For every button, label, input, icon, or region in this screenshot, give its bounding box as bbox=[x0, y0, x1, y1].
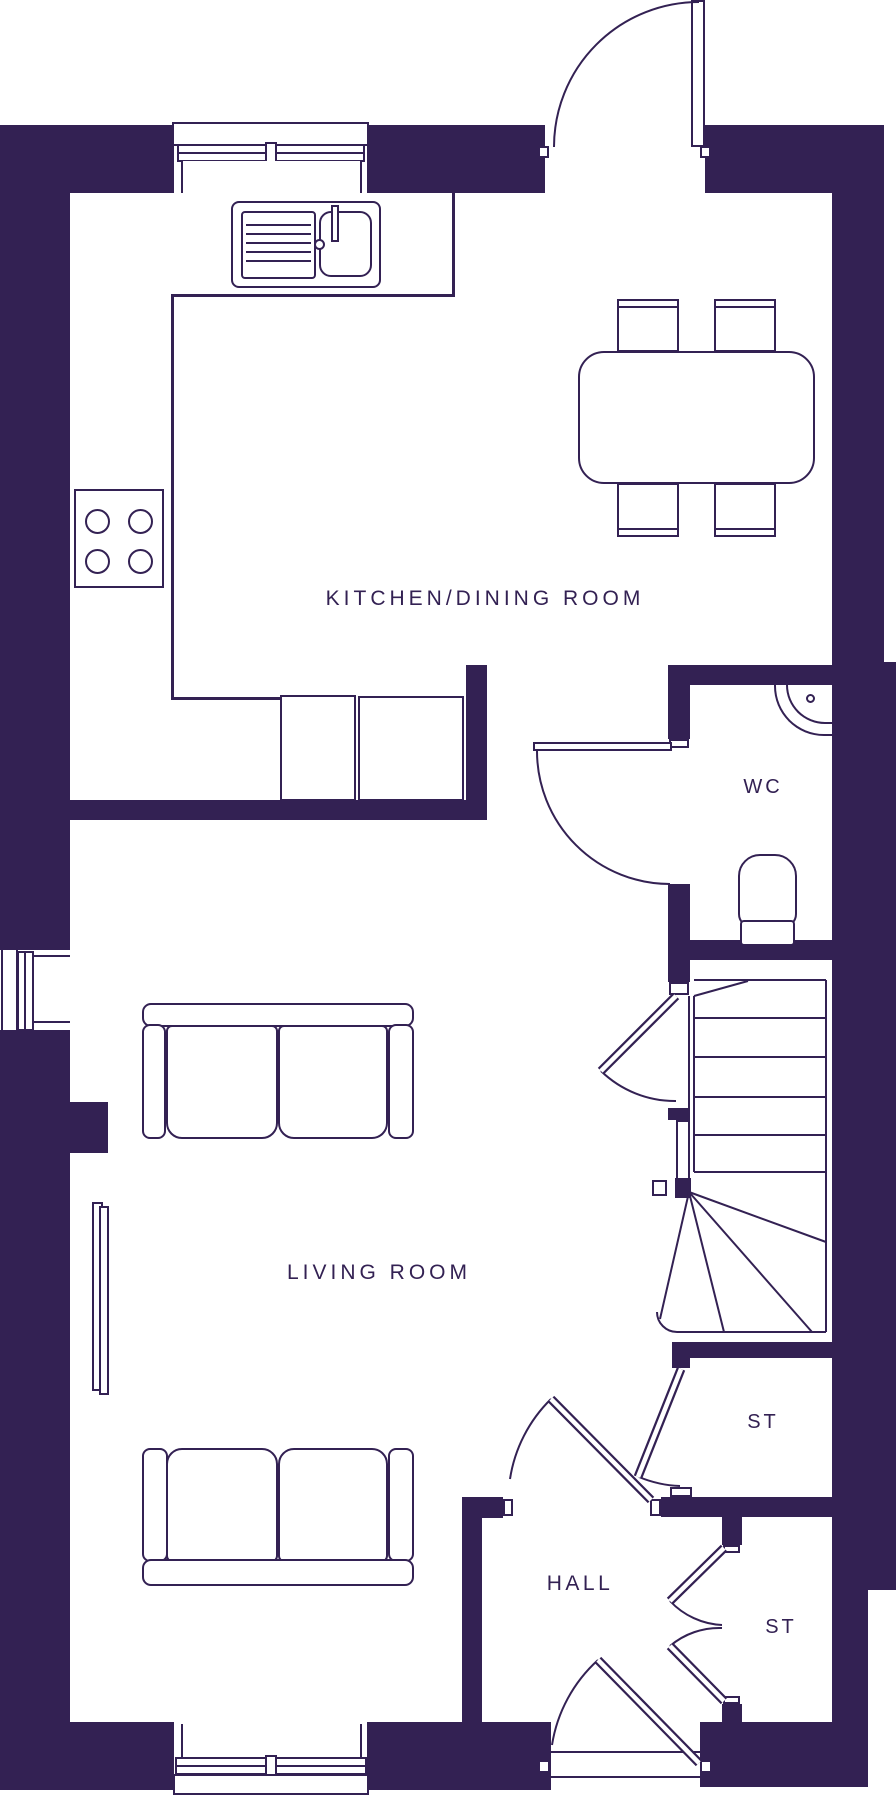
wall-hall-north-east bbox=[661, 1497, 832, 1517]
hob-burner-3 bbox=[85, 549, 110, 574]
jamb-entry-left bbox=[538, 146, 549, 158]
window-left-reveal-bottom bbox=[34, 1021, 70, 1023]
jamb-storage2-top bbox=[723, 1545, 740, 1553]
sofa-bottom-cushion-1 bbox=[166, 1448, 278, 1562]
front-door-leaf bbox=[598, 1660, 699, 1763]
dining-chair-bottom-2-back bbox=[715, 528, 775, 530]
window-left-sill bbox=[1, 948, 18, 1032]
wall-stair-door-stub bbox=[668, 1108, 690, 1120]
stair-winder-treads bbox=[660, 1192, 826, 1332]
sink-tap bbox=[314, 239, 325, 250]
door-swings bbox=[510, 2, 722, 1745]
dining-table bbox=[578, 351, 815, 484]
counter-edge-bottom bbox=[171, 697, 283, 700]
toilet-bowl bbox=[738, 854, 797, 928]
wall-storage2-stub-bottom bbox=[722, 1704, 742, 1724]
hob-burner-4 bbox=[128, 549, 153, 574]
ground-floor-plan: KITCHEN/DINING ROOM WC LIVING ROOM ST HA… bbox=[0, 0, 896, 1796]
sofa-top-cushion-2 bbox=[278, 1025, 388, 1139]
wall-storage1-north-stub bbox=[672, 1342, 690, 1368]
window-left-reveal bbox=[34, 957, 70, 1023]
sink-drainer-groove bbox=[246, 233, 311, 235]
jamb-entry-right bbox=[700, 146, 711, 158]
window-bottom-reveal-left bbox=[181, 1724, 183, 1758]
entry-door-leaf bbox=[691, 0, 705, 147]
window-left-reveal-top bbox=[34, 955, 70, 957]
counter-edge-side bbox=[171, 294, 174, 699]
room-label-storage-1: ST bbox=[732, 1411, 794, 1434]
stair-newel-base bbox=[652, 1180, 667, 1196]
room-label-living: LIVING ROOM bbox=[250, 1261, 508, 1285]
counter-edge-right bbox=[452, 193, 455, 297]
hall-door-leaf-fill bbox=[551, 1399, 651, 1500]
wall-chimney-breast bbox=[70, 1102, 108, 1153]
stairs-door-arc bbox=[601, 1071, 676, 1101]
jamb-hall-door-east bbox=[650, 1499, 661, 1516]
front-door-threshold-outer bbox=[551, 1751, 700, 1753]
stair-newel-post bbox=[675, 1178, 691, 1198]
stair-treads bbox=[694, 980, 826, 1172]
dining-chair-top-2-back bbox=[715, 306, 775, 308]
wall-storage1-north bbox=[672, 1342, 832, 1358]
window-top-reveal bbox=[182, 161, 361, 193]
tv-screen bbox=[99, 1206, 109, 1395]
front-door-leaf-fill bbox=[598, 1660, 699, 1763]
wall-hall-west bbox=[462, 1497, 482, 1724]
room-label-kitchen-dining: KITCHEN/DINING ROOM bbox=[258, 587, 712, 611]
dining-chair-top-1-back bbox=[618, 306, 678, 308]
hob-burner-1 bbox=[85, 509, 110, 534]
window-left-glazing-bar bbox=[24, 953, 26, 1029]
sofa-top-arm-right bbox=[388, 1024, 414, 1139]
sofa-top-arm-left bbox=[142, 1024, 166, 1139]
kitchen-unit-2 bbox=[358, 696, 464, 801]
storage1-door-arc bbox=[639, 1477, 680, 1486]
jamb-front-door-west bbox=[538, 1760, 550, 1773]
room-label-storage-2: ST bbox=[750, 1616, 812, 1639]
wall-wc-north bbox=[668, 665, 832, 685]
storage2-door-leaf-bottom bbox=[670, 1646, 724, 1701]
sink-drainer-groove bbox=[246, 260, 311, 262]
sink-drainer-groove bbox=[246, 251, 311, 253]
storage1-door-leaf-fill bbox=[638, 1369, 681, 1477]
jamb-storage2-bottom bbox=[723, 1696, 740, 1704]
wall-kitchen-pillar bbox=[466, 665, 487, 802]
stairs-door-leaf-fill bbox=[601, 996, 676, 1071]
jamb-wc-door bbox=[669, 739, 689, 748]
wall-right-middle bbox=[832, 662, 896, 1590]
wall-top-left bbox=[0, 125, 174, 193]
stair-top-winder bbox=[694, 981, 748, 996]
wall-right-upper bbox=[832, 125, 884, 662]
jamb-stairs-door bbox=[669, 982, 689, 995]
sofa-bottom-arm-left bbox=[142, 1448, 168, 1562]
room-label-wc: WC bbox=[733, 776, 793, 799]
hall-door-leaf bbox=[551, 1399, 651, 1500]
wc-door-leaf bbox=[533, 742, 672, 751]
sink-drainer-groove bbox=[246, 242, 311, 244]
sofa-top-back bbox=[142, 1003, 414, 1027]
wall-bottom-left bbox=[0, 1722, 174, 1790]
jamb-front-door-east bbox=[700, 1760, 712, 1773]
sink-drainer-groove bbox=[246, 224, 311, 226]
toilet-cistern bbox=[740, 920, 795, 946]
storage2-door-leaf-top bbox=[670, 1548, 724, 1601]
jamb-storage1-door bbox=[670, 1487, 692, 1497]
storage2-door-arc-top bbox=[670, 1601, 722, 1625]
sink-basin bbox=[319, 211, 372, 277]
window-bottom-sill bbox=[173, 1774, 369, 1795]
entry-door-arc bbox=[554, 2, 699, 147]
window-top-mullion bbox=[265, 142, 277, 163]
wc-basin-tap bbox=[806, 694, 815, 703]
window-top-reveal-right bbox=[360, 161, 362, 193]
window-bottom-mullion bbox=[265, 1755, 277, 1776]
sofa-bottom-cushion-2 bbox=[278, 1448, 388, 1562]
wall-wc-west-lower bbox=[668, 884, 690, 982]
stairs-door-leaf bbox=[601, 996, 676, 1071]
wall-storage2-stub-top bbox=[722, 1517, 742, 1545]
door-leaves bbox=[551, 996, 724, 1763]
window-bottom-reveal-right bbox=[360, 1724, 362, 1758]
wall-bottom-middle bbox=[367, 1722, 551, 1790]
dining-chair-bottom-1-back bbox=[618, 528, 678, 530]
stair-bottom-edge bbox=[657, 1312, 826, 1332]
room-label-hall: HALL bbox=[528, 1572, 632, 1596]
front-door-arc bbox=[552, 1660, 598, 1745]
storage2-door-leaf-top-fill bbox=[670, 1548, 724, 1601]
storage2-door-arc-bottom bbox=[670, 1628, 722, 1646]
wall-kitchen-south bbox=[70, 800, 487, 820]
storage1-door-leaf bbox=[638, 1369, 681, 1477]
wall-right-lower bbox=[832, 1590, 868, 1787]
window-top-reveal-left bbox=[181, 161, 183, 193]
wall-wc-west-upper bbox=[668, 665, 690, 739]
wall-left-lower bbox=[0, 1030, 70, 1724]
sink-drainer bbox=[241, 211, 316, 279]
sofa-bottom-back bbox=[142, 1559, 414, 1586]
stair-handrail bbox=[676, 1120, 690, 1180]
counter-edge-top bbox=[171, 294, 455, 297]
wc-door-arc bbox=[537, 751, 670, 884]
hob bbox=[74, 489, 164, 588]
kitchen-unit-1 bbox=[280, 695, 356, 801]
jamb-hall-door-west bbox=[503, 1499, 513, 1516]
window-bottom-reveal bbox=[182, 1724, 361, 1758]
sofa-bottom-arm-right bbox=[388, 1448, 414, 1562]
sofa-top-cushion-1 bbox=[166, 1025, 278, 1139]
wall-left-upper bbox=[0, 193, 70, 950]
wall-top-middle bbox=[367, 125, 545, 193]
front-door-threshold-inner bbox=[551, 1776, 700, 1778]
sink-tap-spout bbox=[331, 205, 339, 242]
hall-door-arc bbox=[510, 1399, 551, 1479]
hob-burner-2 bbox=[128, 509, 153, 534]
storage2-door-leaf-bottom-fill bbox=[670, 1646, 724, 1701]
